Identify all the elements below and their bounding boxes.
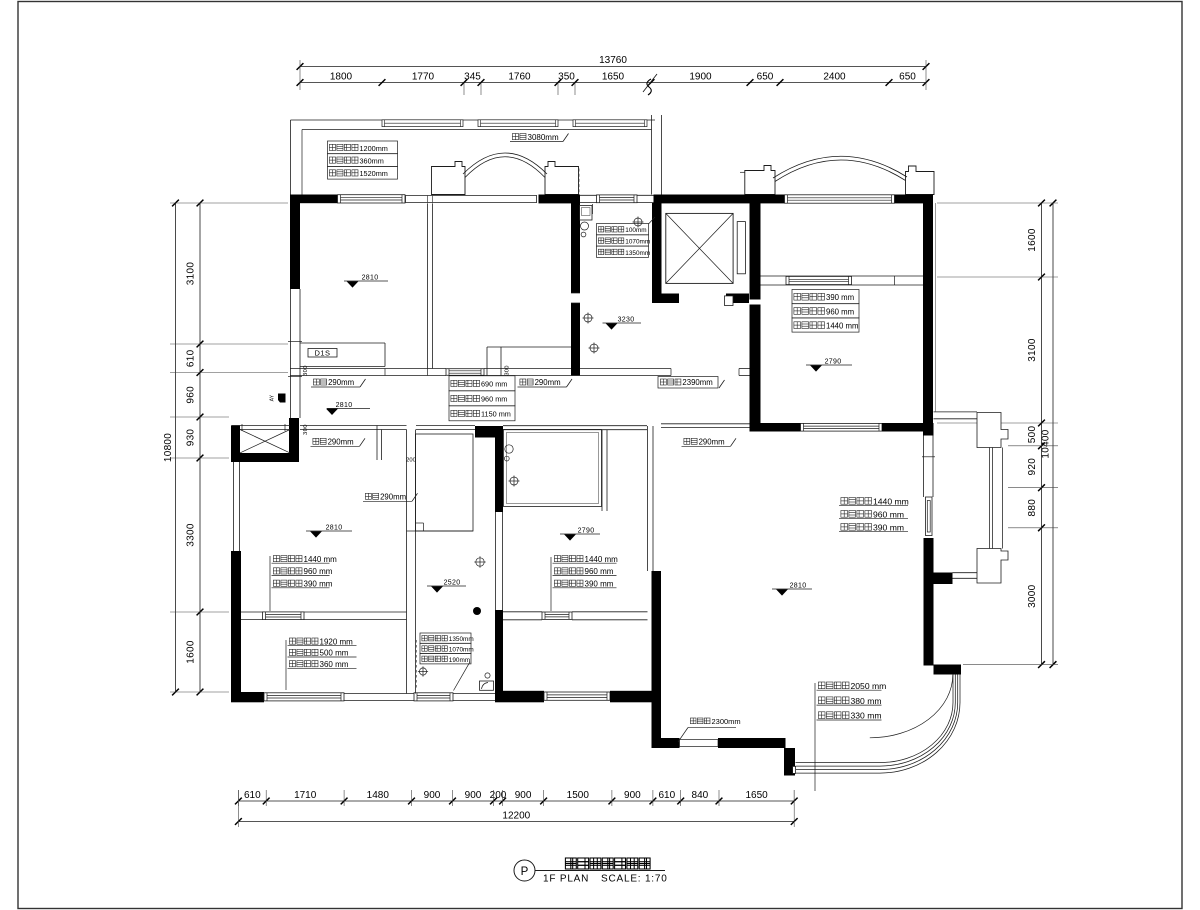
svg-text:2810: 2810 (362, 274, 379, 281)
svg-text:920: 920 (1027, 458, 1038, 476)
svg-text:D1S: D1S (314, 349, 330, 358)
svg-text:3000: 3000 (1027, 584, 1038, 608)
svg-text:900: 900 (515, 790, 532, 801)
svg-text:1440 mm: 1440 mm (585, 555, 619, 564)
svg-text:3300: 3300 (186, 523, 197, 547)
svg-text:330 mm: 330 mm (851, 711, 882, 721)
svg-text:840: 840 (692, 790, 709, 801)
svg-text:2050 mm: 2050 mm (851, 681, 887, 691)
svg-text:SCALE: 1:70: SCALE: 1:70 (601, 874, 668, 885)
svg-text:1350mm: 1350mm (625, 250, 650, 257)
svg-text:1770: 1770 (412, 72, 435, 83)
svg-text:960 mm: 960 mm (826, 307, 854, 316)
svg-text:3100: 3100 (1027, 338, 1038, 362)
svg-text:AY: AY (270, 394, 276, 401)
svg-text:2790: 2790 (578, 527, 595, 534)
svg-text:390 mm: 390 mm (585, 580, 614, 589)
svg-text:1200mm: 1200mm (360, 144, 388, 153)
svg-text:2390mm: 2390mm (682, 378, 712, 387)
svg-text:960 mm: 960 mm (304, 567, 333, 576)
svg-text:100mm: 100mm (625, 227, 646, 234)
svg-text:390 mm: 390 mm (826, 293, 854, 302)
svg-text:P: P (521, 866, 529, 878)
svg-text:1760: 1760 (508, 72, 531, 83)
svg-text:10400: 10400 (1041, 429, 1052, 458)
svg-text:1440 mm: 1440 mm (304, 555, 338, 564)
svg-text:1800: 1800 (330, 72, 353, 83)
svg-text:2810: 2810 (336, 402, 353, 409)
svg-text:360mm: 360mm (360, 156, 384, 165)
svg-text:1650: 1650 (602, 72, 625, 83)
svg-text:290mm: 290mm (380, 493, 406, 502)
svg-text:880: 880 (1027, 499, 1038, 517)
svg-text:2790: 2790 (825, 358, 842, 365)
svg-text:390 mm: 390 mm (304, 580, 333, 589)
svg-text:1920 mm: 1920 mm (320, 637, 354, 646)
svg-text:1070mm: 1070mm (449, 646, 474, 653)
svg-text:3230: 3230 (618, 316, 635, 323)
svg-text:1900: 1900 (689, 72, 712, 83)
svg-text:390 mm: 390 mm (873, 522, 904, 532)
svg-text:960 mm: 960 mm (481, 395, 507, 404)
svg-text:350: 350 (558, 72, 575, 83)
svg-text:2400: 2400 (823, 72, 846, 83)
svg-text:2300mm: 2300mm (712, 717, 741, 726)
svg-text:380 mm: 380 mm (851, 696, 882, 706)
svg-text:290mm: 290mm (328, 378, 354, 387)
svg-text:200: 200 (406, 458, 416, 464)
svg-text:290mm: 290mm (699, 438, 725, 447)
svg-text:1F PLAN: 1F PLAN (543, 874, 589, 885)
svg-text:960: 960 (186, 386, 197, 404)
svg-text:1480: 1480 (367, 790, 390, 801)
svg-text:2520: 2520 (444, 579, 461, 586)
svg-text:1650: 1650 (745, 790, 768, 801)
svg-text:1070mm: 1070mm (625, 239, 650, 246)
svg-text:1440 mm: 1440 mm (873, 496, 909, 506)
svg-text:1600: 1600 (186, 640, 197, 664)
svg-text:2810: 2810 (326, 524, 343, 531)
svg-text:3100: 3100 (186, 262, 197, 286)
svg-text:1520mm: 1520mm (360, 169, 388, 178)
svg-text:1500: 1500 (567, 790, 590, 801)
svg-text:190mm: 190mm (449, 657, 470, 664)
svg-text:650: 650 (899, 72, 916, 83)
svg-text:13760: 13760 (599, 55, 627, 66)
svg-text:2810: 2810 (790, 582, 807, 589)
svg-text:960 mm: 960 mm (585, 567, 614, 576)
svg-text:500: 500 (1027, 425, 1038, 443)
svg-text:930: 930 (186, 429, 197, 447)
svg-text:3080mm: 3080mm (528, 133, 559, 142)
svg-text:1150 mm: 1150 mm (481, 410, 511, 419)
svg-text:345: 345 (464, 72, 481, 83)
svg-text:650: 650 (757, 72, 774, 83)
svg-text:1600: 1600 (1027, 228, 1038, 252)
svg-text:290mm: 290mm (535, 378, 561, 387)
svg-text:900: 900 (424, 790, 441, 801)
svg-text:1710: 1710 (294, 790, 317, 801)
svg-text:1350mm: 1350mm (449, 636, 474, 643)
svg-text:610: 610 (186, 349, 197, 367)
svg-text:610: 610 (244, 790, 261, 801)
svg-text:360 mm: 360 mm (320, 660, 349, 669)
svg-text:300: 300 (505, 365, 511, 375)
svg-text:960 mm: 960 mm (873, 509, 904, 519)
svg-text:1440 mm: 1440 mm (826, 322, 859, 331)
svg-text:690 mm: 690 mm (481, 380, 507, 389)
svg-text:610: 610 (658, 790, 675, 801)
svg-text:900: 900 (465, 790, 482, 801)
svg-text:12200: 12200 (502, 811, 530, 822)
svg-text:200: 200 (490, 790, 507, 801)
svg-text:900: 900 (624, 790, 641, 801)
svg-text:500 mm: 500 mm (320, 649, 349, 658)
svg-text:290mm: 290mm (328, 438, 354, 447)
